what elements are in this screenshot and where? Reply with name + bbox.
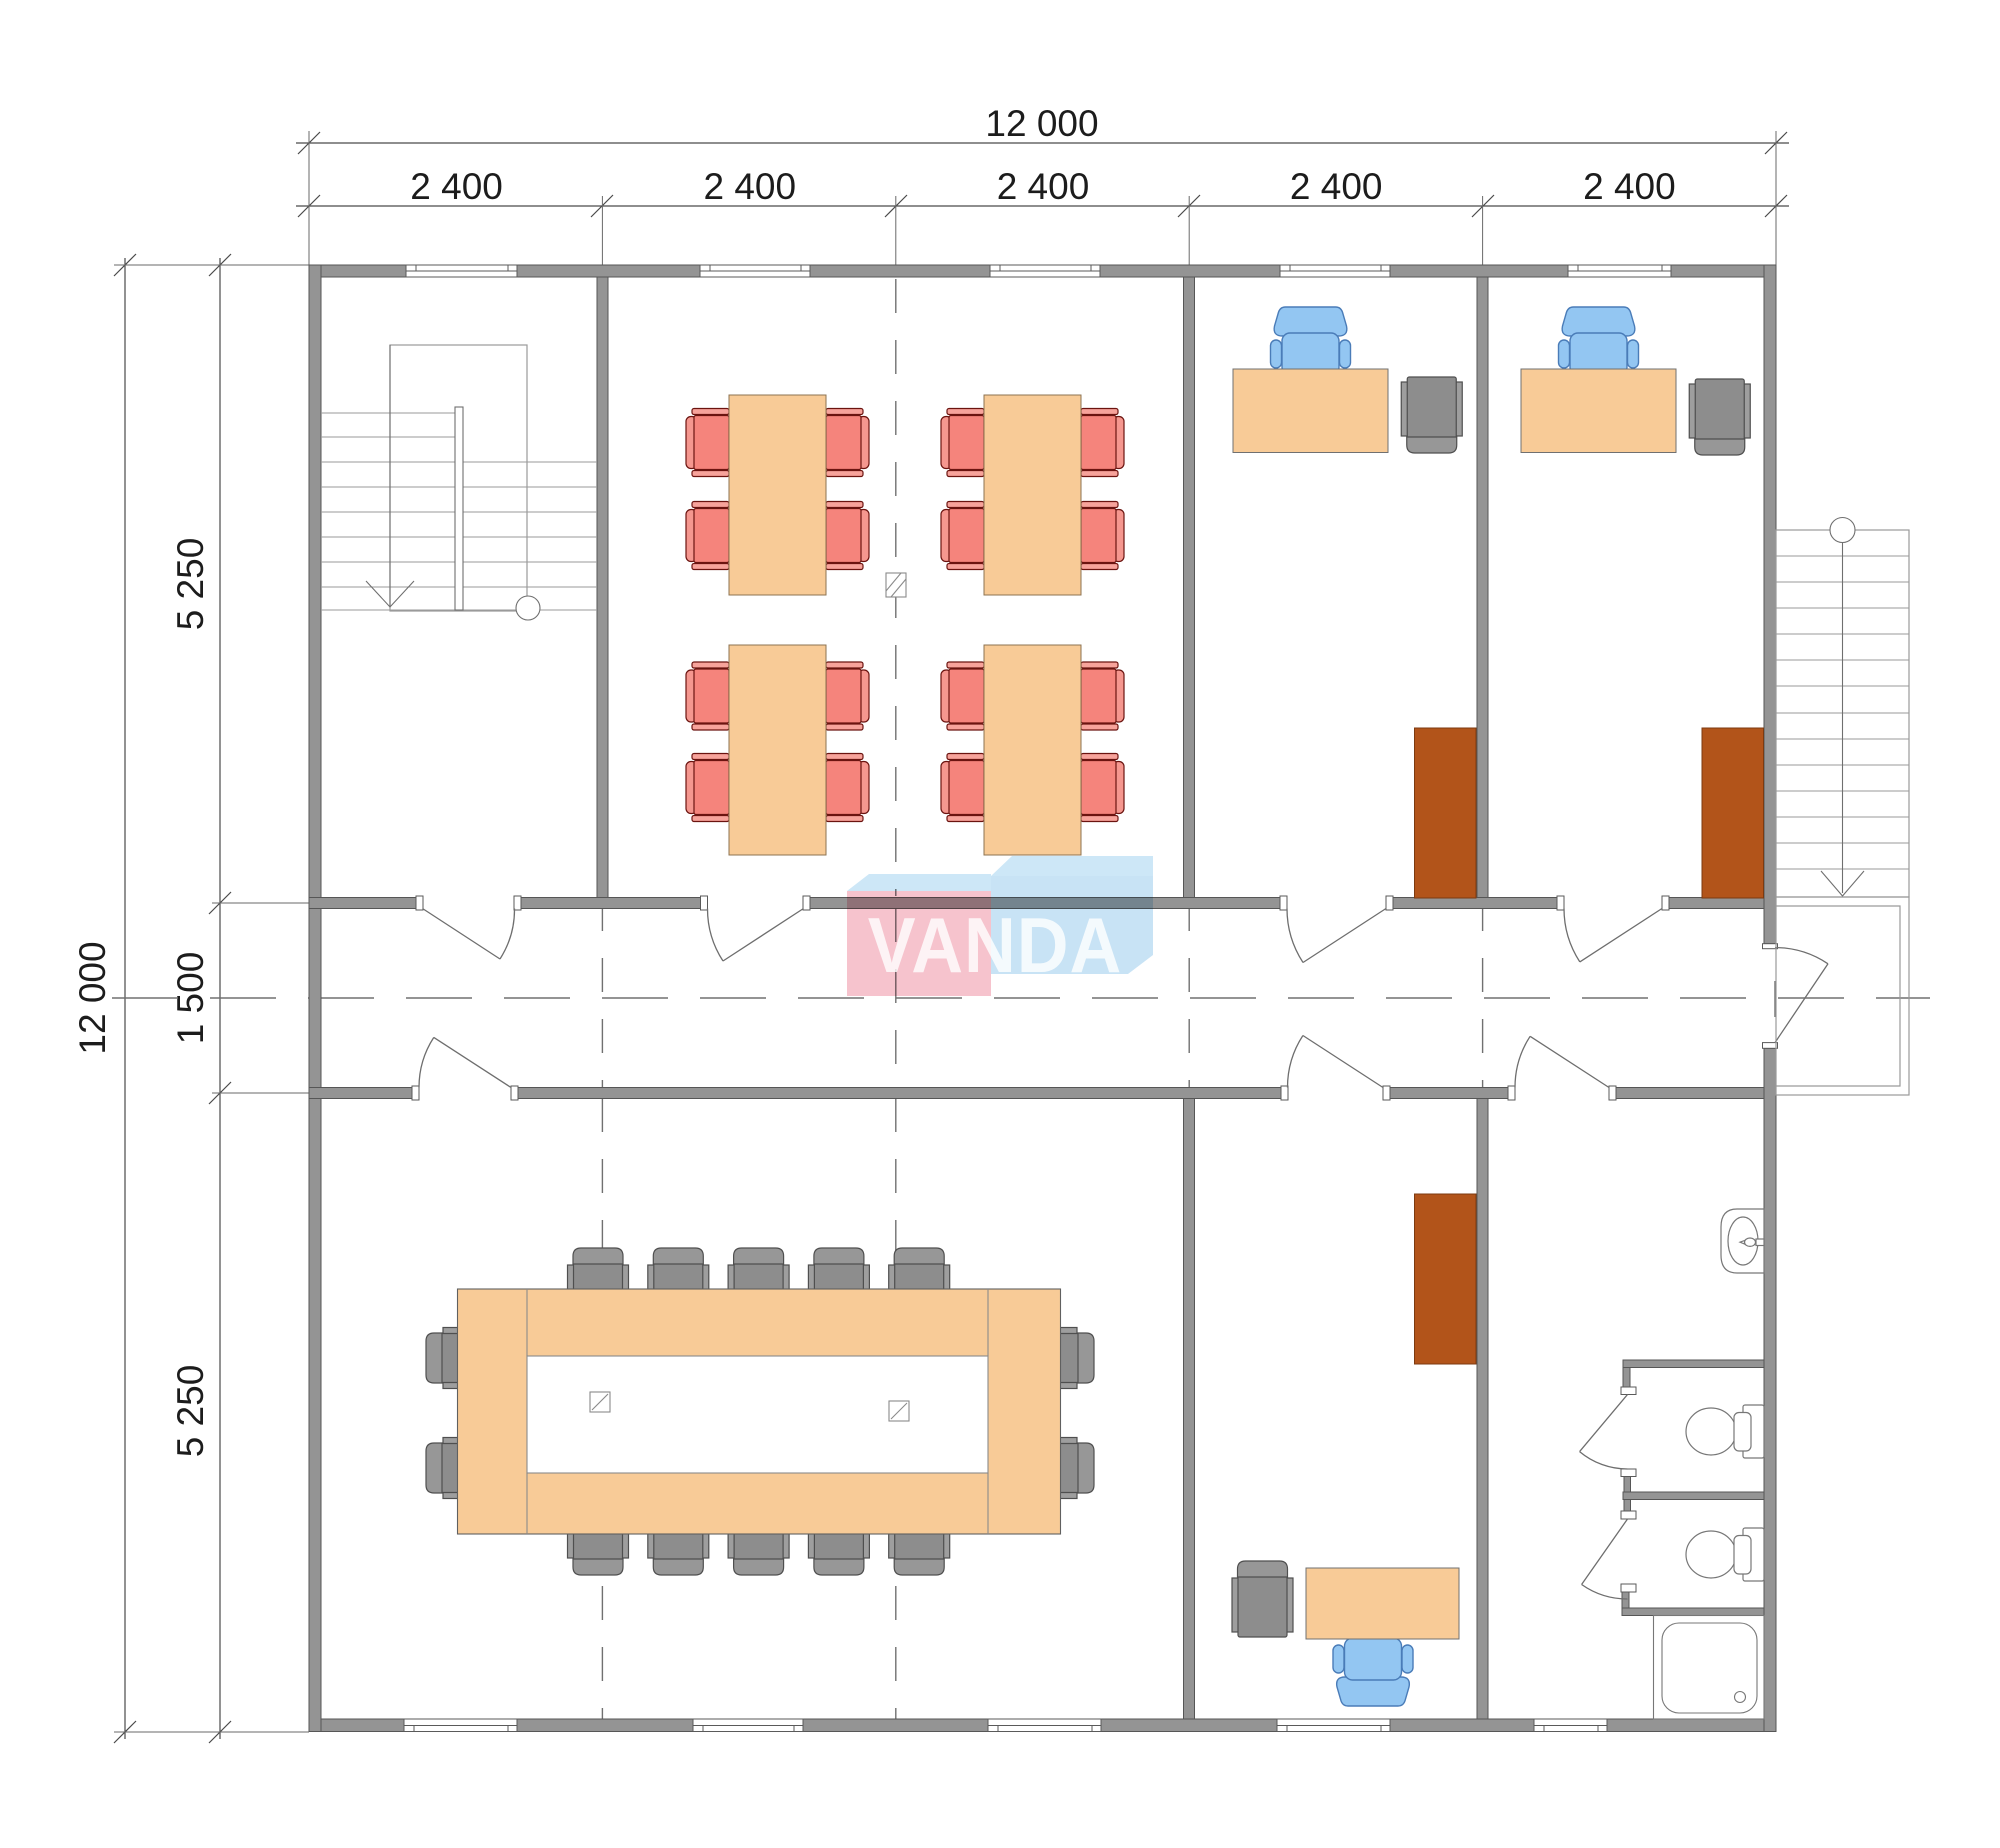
- svg-text:VANDA: VANDA: [868, 901, 1122, 988]
- svg-text:5 250: 5 250: [170, 1365, 211, 1458]
- svg-text:12 000: 12 000: [985, 103, 1098, 144]
- svg-text:2 400: 2 400: [410, 166, 503, 207]
- svg-text:2 400: 2 400: [1290, 166, 1383, 207]
- svg-text:2 400: 2 400: [997, 166, 1090, 207]
- svg-text:12 000: 12 000: [72, 941, 113, 1054]
- svg-text:2 400: 2 400: [704, 166, 797, 207]
- svg-text:5 250: 5 250: [170, 538, 211, 631]
- svg-text:2 400: 2 400: [1583, 166, 1676, 207]
